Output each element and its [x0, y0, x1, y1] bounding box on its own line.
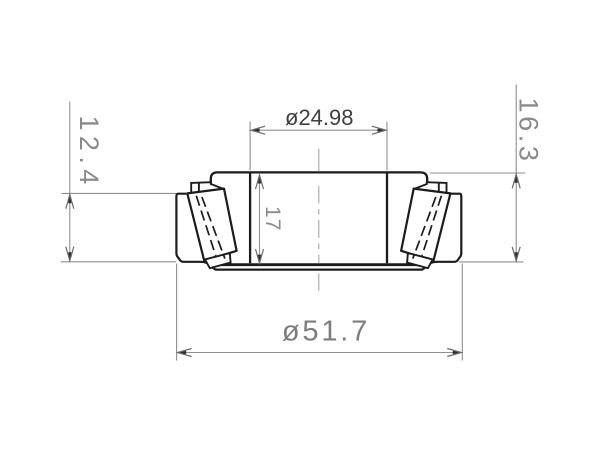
svg-text:ø51.7: ø51.7: [282, 316, 370, 348]
svg-text:17: 17: [261, 206, 284, 231]
svg-text:16.3: 16.3: [514, 98, 544, 165]
svg-text:ø24.98: ø24.98: [285, 105, 354, 130]
svg-text:12.4: 12.4: [74, 116, 104, 190]
